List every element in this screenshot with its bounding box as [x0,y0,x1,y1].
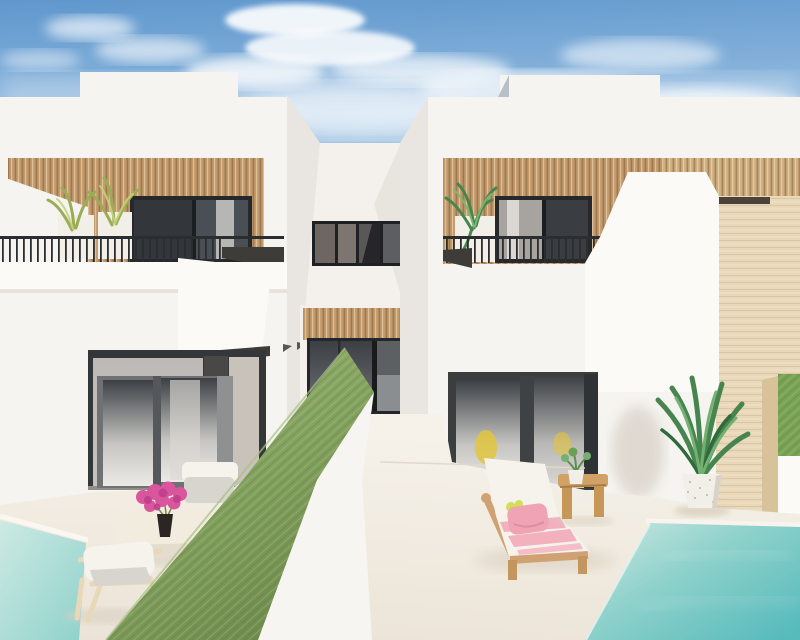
interior-yellow-chair [553,432,571,456]
right-roof-box [500,75,660,98]
hedge-texture [778,374,800,456]
stool-plant-pot [568,470,584,484]
right-villa [400,75,800,527]
lounger-foot-bar [510,555,588,560]
stool-leg [594,484,604,517]
villa-render [0,0,800,640]
right-villa-side-face [400,97,428,450]
lounger-leg [508,560,517,580]
lounger-leg [578,556,587,574]
left-pool-corner [0,516,88,640]
pink-pillow [506,502,550,535]
beige-tower-side [762,376,778,527]
palm-wall-shadow [612,406,664,498]
stool-leg [562,486,572,519]
dark-reveal-slot [716,197,770,204]
chair-seat-pad [90,567,152,586]
render-canvas [0,0,800,640]
left-roof-box [80,72,238,98]
left-villa [0,72,320,490]
left-mid-volume [178,258,272,352]
